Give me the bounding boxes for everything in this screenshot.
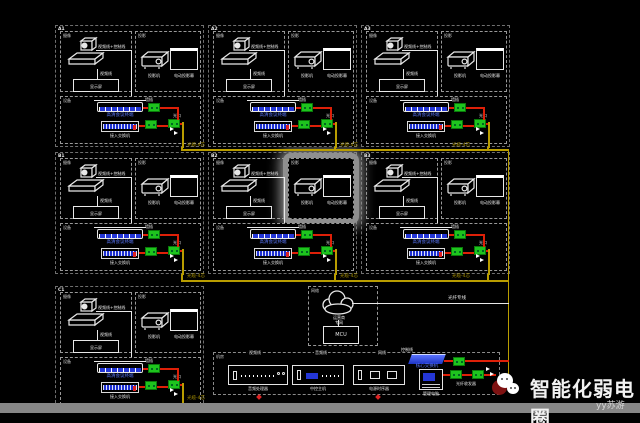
revision-mark — [375, 394, 381, 400]
camera-wire-v — [437, 50, 438, 102]
red-wire — [445, 252, 451, 254]
wall-plate-label: 墙插 — [451, 97, 459, 102]
red-wire — [449, 107, 454, 109]
wan-line — [352, 303, 509, 304]
red-wire — [143, 234, 148, 236]
room-panel[interactable]: C1 摄像 视频线 显示屏 投影 投影机 电动投影幕 — [55, 286, 204, 408]
connector-arrow-icon — [486, 367, 490, 371]
screen-label: 电动投影幕 — [164, 73, 204, 78]
projector-icon — [293, 176, 323, 198]
camera-box: 摄像 视频线 显示屏 — [213, 158, 285, 219]
watermark-logo-icon — [492, 371, 524, 403]
camera-box: 摄像 视频线 显示屏 — [60, 158, 132, 219]
fiber-wire — [488, 249, 490, 275]
display-box: 显示屏 — [226, 79, 272, 92]
red-wire — [139, 252, 145, 254]
rack-terminal-block — [472, 370, 484, 379]
codec-lid — [247, 227, 299, 228]
equipment-box: 设备 高清会议终端 接入交换机 墙插 光口 — [213, 96, 354, 144]
cloud-label-2: 专网 — [323, 320, 355, 325]
codec-label: 高清会议终端 — [393, 240, 459, 245]
camera-box: 摄像 视频线 显示屏 — [366, 158, 438, 219]
codec-device — [97, 229, 143, 239]
projector-icon — [446, 49, 476, 71]
screen-label: 电动投影幕 — [164, 200, 204, 205]
red-wire — [483, 234, 485, 247]
wall-plate-block — [148, 103, 160, 112]
wall-plate-label: 墙插 — [145, 358, 153, 363]
red-wire — [177, 368, 179, 381]
screen-label: 电动投影幕 — [470, 200, 510, 205]
wall-plate-block — [301, 103, 313, 112]
wall-plate-block — [451, 247, 463, 256]
projection-screen — [170, 175, 198, 197]
projector-box-tag: 投影 — [444, 33, 452, 39]
access-switch-label: 接入交换机 — [399, 133, 453, 138]
room-panel[interactable]: A3 摄像 视频线 显示屏 投影 投影机 电动投影幕 — [361, 25, 510, 147]
red-wire — [143, 107, 148, 109]
access-switch-front — [409, 124, 443, 129]
access-switch-label: 接入交换机 — [93, 260, 147, 265]
wall-plate-block — [451, 120, 463, 129]
camera-drop-label: 视频线 — [100, 198, 112, 203]
connector-arrow-icon — [327, 131, 331, 135]
access-switch-port — [439, 125, 442, 130]
red-wire — [445, 125, 451, 127]
red-wire — [462, 374, 472, 376]
projector-screen-box: 投影 投影机 电动投影幕 — [135, 292, 201, 353]
camera-drop-wire — [97, 330, 98, 340]
display-label: 显示屏 — [380, 84, 424, 89]
access-switch-port — [133, 386, 136, 391]
fiber-wire — [335, 122, 337, 148]
room-panel[interactable]: B2 摄像 视频线 显示屏 投影 投影机 电动投影幕 — [208, 152, 357, 274]
pc-screen — [423, 373, 435, 381]
rack-panel-tag: 机房 — [216, 354, 224, 360]
codec-front-panel — [405, 107, 447, 111]
rack-cable-label: 视频线 — [248, 350, 262, 355]
fiber-wire — [182, 249, 184, 275]
projector-box-tag: 投影 — [291, 160, 299, 166]
codec-front-panel — [99, 234, 141, 238]
rack-device-label: 音频处理器 — [224, 386, 292, 391]
camera-icon — [67, 37, 107, 69]
display-label: 显示屏 — [74, 345, 118, 350]
display-box: 显示屏 — [226, 206, 272, 219]
codec-device — [250, 102, 296, 112]
camera-wire-v — [284, 50, 285, 102]
codec-lid — [94, 227, 146, 228]
central-control-device — [292, 365, 344, 385]
camera-wire-h — [402, 177, 438, 178]
rack-cable-label: 音频线 — [314, 350, 328, 355]
camera-box: 摄像 视频线 显示屏 — [60, 292, 132, 353]
screen-label: 电动投影幕 — [317, 73, 357, 78]
wall-plate-block — [298, 120, 310, 129]
rack-cable-label: 网线 — [377, 350, 387, 355]
camera-wire-v — [437, 177, 438, 229]
projector-box-tag: 投影 — [138, 160, 146, 166]
fiber-label: 光缆-4芯 — [452, 274, 470, 279]
camera-wire-v — [131, 311, 132, 363]
red-wire — [157, 125, 168, 127]
projector-box-tag: 投影 — [138, 33, 146, 39]
room-panel[interactable]: A2 摄像 视频线 显示屏 投影 投影机 电动投影幕 — [208, 25, 357, 147]
red-wire — [310, 252, 321, 254]
projection-screen — [170, 48, 198, 70]
red-wire — [444, 360, 453, 362]
codec-lid — [94, 361, 146, 362]
wall-plate-label: 墙插 — [298, 224, 306, 229]
display-box: 显示屏 — [73, 206, 119, 219]
equipment-box-tag: 设备 — [216, 98, 224, 104]
codec-lid — [247, 100, 299, 101]
camera-wire-h — [249, 177, 285, 178]
connector-arrow-icon — [174, 131, 178, 135]
red-wire — [443, 374, 450, 376]
projector-screen-box: 投影 投影机 电动投影幕 — [288, 158, 354, 219]
red-wire — [463, 252, 474, 254]
network-box[interactable]: 网络 运营商 专网 MCU — [308, 286, 378, 346]
rack-device-label: 电源时序器 — [350, 386, 408, 391]
camera-drop-label: 视频线 — [253, 198, 265, 203]
wall-plate-block — [148, 364, 160, 373]
projector-icon — [140, 310, 170, 332]
codec-device — [403, 102, 449, 112]
watermark-author: yy苏游 — [596, 398, 625, 411]
camera-wire-label: 视频线+控制线 — [251, 44, 278, 49]
wall-plate-label: 墙插 — [145, 97, 153, 102]
transceiver-label: 光纤收发器 — [456, 381, 476, 386]
wall-plate-label: 墙插 — [298, 97, 306, 102]
access-switch-front — [409, 251, 443, 256]
camera-wire-v — [131, 177, 132, 229]
projector-screen-box: 投影 投影机 电动投影幕 — [288, 31, 354, 92]
codec-lid — [400, 100, 452, 101]
power-sequencer-device — [353, 365, 405, 385]
fiber-label: 光缆-4芯 — [452, 143, 470, 148]
audio-processor-device — [228, 365, 288, 385]
fiber-label: 光缆-4芯 — [187, 274, 205, 279]
equipment-box: 设备 高清会议终端 接入交换机 墙插 光口 — [213, 223, 354, 271]
access-switch-front — [103, 385, 137, 390]
camera-drop-wire — [250, 69, 251, 79]
connector-arrow-icon — [327, 258, 331, 262]
display-label: 显示屏 — [227, 211, 271, 216]
fiber-label: 光缆-4芯 — [187, 143, 205, 148]
access-switch-label: 接入交换机 — [93, 394, 147, 399]
camera-wire-label: 视频线+控制线 — [404, 44, 431, 49]
rack-device-label: 中控主机 — [290, 386, 346, 391]
fiber-label: 光缆-4芯 — [340, 143, 358, 148]
display-box: 显示屏 — [73, 79, 119, 92]
fiber-bus-row2 — [181, 280, 509, 282]
access-switch-label: 接入交换机 — [246, 133, 300, 138]
cad-canvas: C1 摄像 视频线 显示屏 投影 投影机 电动投影幕 — [0, 0, 640, 423]
connector-arrow-icon — [174, 258, 178, 262]
camera-icon — [67, 298, 107, 330]
codec-front-panel — [252, 107, 294, 111]
codec-device — [97, 102, 143, 112]
projector-icon — [293, 49, 323, 71]
camera-wire-h — [249, 50, 285, 51]
red-wire — [449, 234, 454, 236]
equipment-box-tag: 设备 — [63, 225, 71, 231]
mcu-label: MCU — [324, 333, 358, 338]
fiber-wire — [488, 122, 490, 148]
codec-lid — [94, 100, 146, 101]
red-wire — [465, 360, 509, 362]
codec-label: 高清会议终端 — [87, 113, 153, 118]
projector-screen-box: 投影 投影机 电动投影幕 — [441, 31, 507, 92]
access-switch-device — [101, 248, 139, 259]
red-wire — [296, 107, 301, 109]
red-wire — [330, 234, 332, 247]
camera-drop-label: 视频线 — [406, 71, 418, 76]
codec-front-panel — [99, 107, 141, 111]
equipment-box-tag: 设备 — [63, 359, 71, 365]
access-switch-port — [133, 125, 136, 130]
camera-icon — [373, 37, 413, 69]
equipment-box-tag: 设备 — [369, 98, 377, 104]
access-switch-front — [103, 124, 137, 129]
access-switch-port — [133, 252, 136, 257]
display-box: 显示屏 — [379, 206, 425, 219]
codec-label: 高清会议终端 — [240, 240, 306, 245]
access-switch-device — [101, 382, 139, 393]
screen-label: 电动投影幕 — [317, 200, 357, 205]
equipment-box-tag: 设备 — [216, 225, 224, 231]
camera-wire-h — [96, 50, 132, 51]
camera-drop-label: 视频线 — [253, 71, 265, 76]
access-switch-device — [101, 121, 139, 132]
access-switch-device — [407, 248, 445, 259]
projector-box-tag: 投影 — [444, 160, 452, 166]
rack-terminal-block — [450, 370, 462, 379]
wall-plate-block — [145, 247, 157, 256]
codec-device — [250, 229, 296, 239]
camera-drop-wire — [250, 196, 251, 206]
access-switch-front — [256, 124, 290, 129]
camera-wire-h — [96, 177, 132, 178]
rack-cable-label: 控制线 — [400, 347, 414, 352]
access-switch-device — [254, 121, 292, 132]
camera-wire-v — [284, 177, 285, 229]
projector-icon — [140, 49, 170, 71]
room-panel[interactable]: A1 摄像 视频线 显示屏 投影 投影机 电动投影幕 — [55, 25, 204, 147]
codec-front-panel — [405, 234, 447, 238]
projection-screen — [323, 48, 351, 70]
codec-device — [403, 229, 449, 239]
fiber-wire — [335, 249, 337, 275]
red-wire — [177, 234, 179, 247]
red-wire — [296, 234, 301, 236]
wall-plate-block — [298, 247, 310, 256]
connector-arrow-icon — [174, 392, 178, 396]
equipment-box: 设备 高清会议终端 接入交换机 墙插 光口 — [366, 223, 507, 271]
camera-box: 摄像 视频线 显示屏 — [60, 31, 132, 92]
display-box: 显示屏 — [379, 79, 425, 92]
camera-drop-wire — [97, 69, 98, 79]
projection-screen — [476, 48, 504, 70]
red-wire — [330, 107, 332, 120]
access-switch-label: 接入交换机 — [246, 260, 300, 265]
access-switch-port — [286, 252, 289, 257]
connector-arrow-icon — [480, 258, 484, 262]
equipment-box-tag: 设备 — [369, 225, 377, 231]
red-wire — [463, 125, 474, 127]
camera-icon — [67, 164, 107, 196]
equipment-box: 设备 高清会议终端 接入交换机 墙插 光口 — [60, 223, 201, 271]
fiber-bus-row1 — [181, 149, 509, 151]
projection-screen — [476, 175, 504, 197]
camera-wire-h — [402, 50, 438, 51]
wall-plate-block — [301, 230, 313, 239]
camera-drop-label: 视频线 — [100, 71, 112, 76]
screen-label: 电动投影幕 — [470, 73, 510, 78]
fiber-label: 光缆-4芯 — [187, 396, 205, 401]
camera-drop-label: 视频线 — [100, 332, 112, 337]
codec-lid — [400, 227, 452, 228]
projector-icon — [140, 176, 170, 198]
access-switch-label: 接入交换机 — [399, 260, 453, 265]
camera-wire-label: 视频线+控制线 — [98, 305, 125, 310]
red-wire — [292, 252, 298, 254]
camera-box: 摄像 视频线 显示屏 — [213, 31, 285, 92]
red-wire — [139, 125, 145, 127]
management-pc — [419, 369, 443, 390]
projection-screen — [170, 309, 198, 331]
codec-label: 高清会议终端 — [87, 374, 153, 379]
projector-box-tag: 投影 — [291, 33, 299, 39]
codec-label: 高清会议终端 — [87, 240, 153, 245]
wall-plate-block — [454, 103, 466, 112]
camera-icon — [373, 164, 413, 196]
camera-drop-wire — [403, 69, 404, 79]
camera-wire-label: 视频线+控制线 — [404, 171, 431, 176]
display-label: 显示屏 — [74, 211, 118, 216]
access-switch-device — [407, 121, 445, 132]
red-wire — [157, 252, 168, 254]
equipment-box: 设备 高清会议终端 接入交换机 墙插 光口 — [60, 357, 201, 405]
room-panel[interactable]: B1 摄像 视频线 显示屏 投影 投影机 电动投影幕 — [55, 152, 204, 274]
red-wire — [292, 125, 298, 127]
red-wire — [139, 386, 145, 388]
screen-label: 电动投影幕 — [164, 334, 204, 339]
camera-icon — [220, 37, 260, 69]
access-switch-label: 接入交换机 — [93, 133, 147, 138]
codec-device — [97, 363, 143, 373]
connector-arrow-icon — [480, 131, 484, 135]
access-switch-front — [103, 251, 137, 256]
management-pc-label: 管理电脑 — [414, 391, 448, 396]
camera-drop-wire — [403, 196, 404, 206]
wall-plate-block — [148, 230, 160, 239]
red-wire — [157, 386, 168, 388]
projector-screen-box: 投影 投影机 电动投影幕 — [135, 158, 201, 219]
fiber-riser-bus — [508, 149, 509, 386]
core-switch-device — [408, 354, 446, 364]
fiber-wire — [182, 122, 184, 148]
camera-icon — [220, 164, 260, 196]
red-wire — [177, 107, 179, 120]
rack-terminal-block — [453, 357, 465, 366]
mcu-box: MCU — [323, 326, 359, 344]
projection-screen — [323, 175, 351, 197]
wall-plate-block — [145, 381, 157, 390]
revision-mark — [256, 394, 262, 400]
access-switch-device — [254, 248, 292, 259]
projector-screen-box: 投影 投影机 电动投影幕 — [135, 31, 201, 92]
camera-wire-v — [131, 50, 132, 102]
display-label: 显示屏 — [227, 84, 271, 89]
projector-screen-box: 投影 投影机 电动投影幕 — [441, 158, 507, 219]
rack-panel[interactable]: 机房 视频线 音频线 网线 控制线 音频处理器 中控主机 电源时序器 核心交换机 — [213, 352, 500, 395]
access-switch-port — [286, 125, 289, 130]
codec-label: 高清会议终端 — [240, 113, 306, 118]
camera-wire-label: 视频线+控制线 — [251, 171, 278, 176]
codec-label: 高清会议终端 — [393, 113, 459, 118]
display-label: 显示屏 — [380, 211, 424, 216]
equipment-box-tag: 设备 — [63, 98, 71, 104]
access-switch-port — [439, 252, 442, 257]
red-wire — [143, 368, 148, 370]
wall-plate-label: 墙插 — [145, 224, 153, 229]
camera-drop-label: 视频线 — [406, 198, 418, 203]
camera-box: 摄像 视频线 显示屏 — [366, 31, 438, 92]
display-box: 显示屏 — [73, 340, 119, 353]
room-panel[interactable]: B3 摄像 视频线 显示屏 投影 投影机 电动投影幕 — [361, 152, 510, 274]
display-label: 显示屏 — [74, 84, 118, 89]
wall-plate-block — [454, 230, 466, 239]
equipment-box: 设备 高清会议终端 接入交换机 墙插 光口 — [366, 96, 507, 144]
wall-plate-block — [145, 120, 157, 129]
red-wire — [310, 125, 321, 127]
wan-line-label: 光纤专线 — [448, 296, 466, 301]
projector-box-tag: 投影 — [138, 294, 146, 300]
projector-icon — [446, 176, 476, 198]
access-switch-front — [256, 251, 290, 256]
camera-drop-wire — [97, 196, 98, 206]
red-wire — [483, 107, 485, 120]
equipment-box: 设备 高清会议终端 接入交换机 墙插 光口 — [60, 96, 201, 144]
codec-front-panel — [252, 234, 294, 238]
camera-wire-h — [96, 311, 132, 312]
camera-wire-label: 视频线+控制线 — [98, 44, 125, 49]
wall-plate-label: 墙插 — [451, 224, 459, 229]
codec-front-panel — [99, 368, 141, 372]
fiber-label: 光缆-4芯 — [340, 274, 358, 279]
camera-wire-label: 视频线+控制线 — [98, 171, 125, 176]
